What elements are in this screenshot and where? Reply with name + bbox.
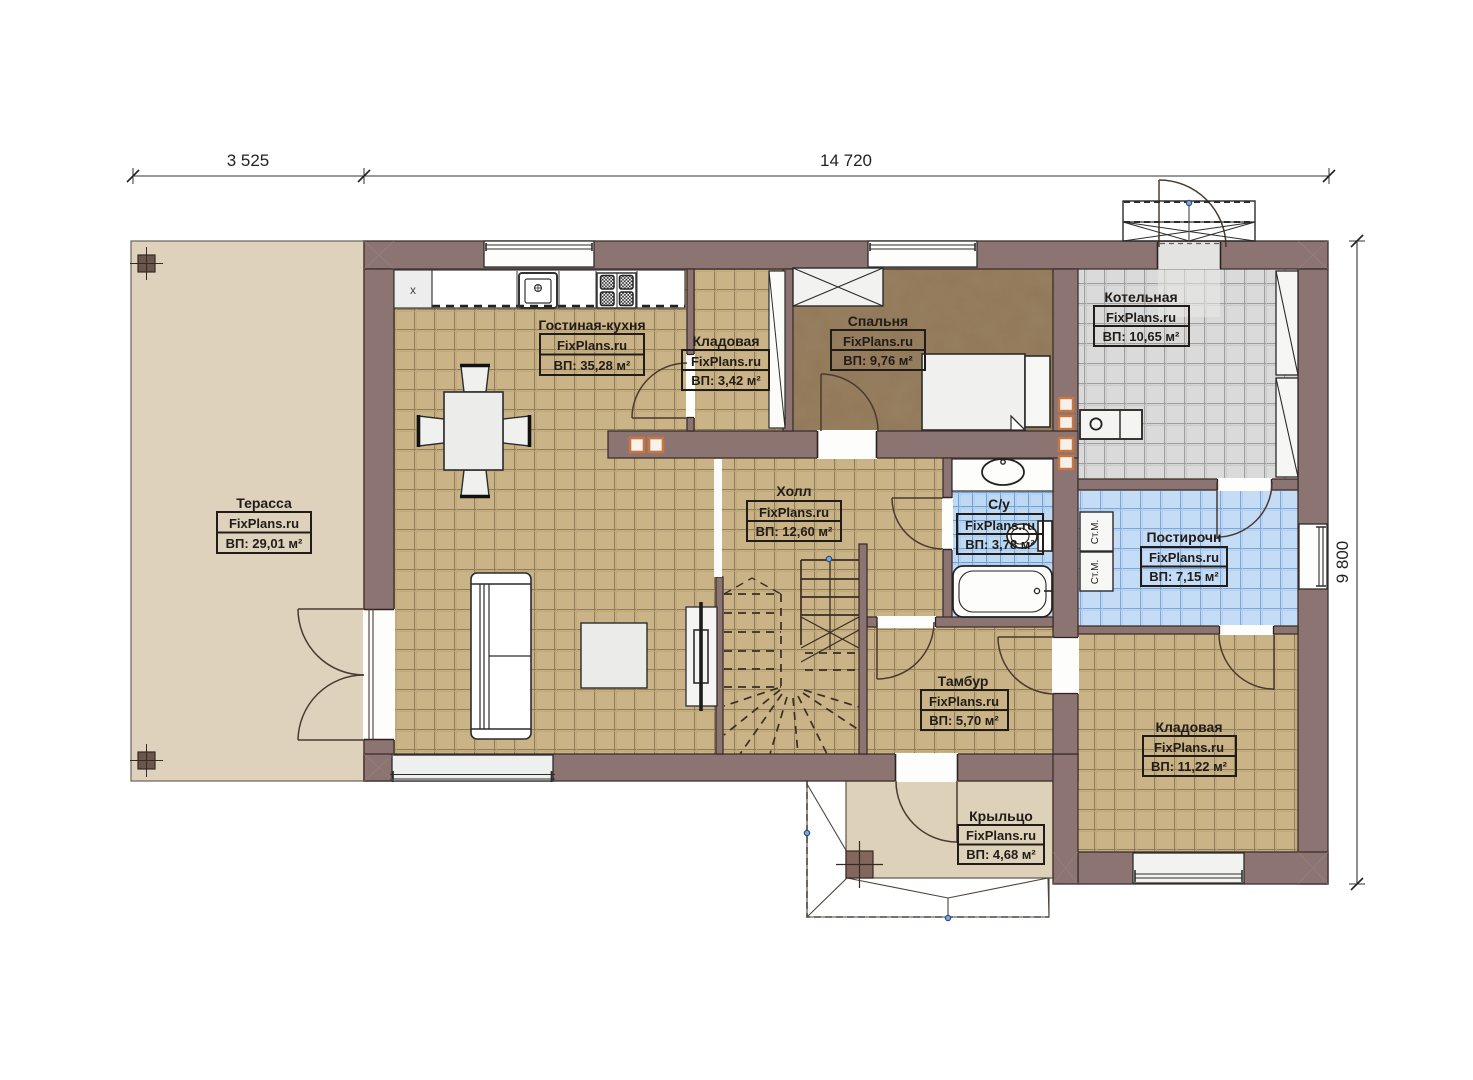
svg-text:3 525: 3 525 (227, 151, 270, 170)
svg-text:FixPlans.ru: FixPlans.ru (691, 354, 761, 369)
svg-text:Котельная: Котельная (1104, 289, 1177, 305)
svg-text:FixPlans.ru: FixPlans.ru (759, 505, 829, 520)
svg-text:ВП: 3,78 м²: ВП: 3,78 м² (965, 537, 1035, 552)
svg-text:9 800: 9 800 (1333, 541, 1352, 584)
svg-text:FixPlans.ru: FixPlans.ru (965, 518, 1035, 533)
svg-text:С/у: С/у (988, 496, 1010, 512)
svg-text:FixPlans.ru: FixPlans.ru (929, 694, 999, 709)
svg-text:FixPlans.ru: FixPlans.ru (1154, 740, 1224, 755)
svg-text:Кладовая: Кладовая (1155, 719, 1222, 735)
svg-text:Кладовая: Кладовая (692, 333, 759, 349)
svg-text:Гостиная-кухня: Гостиная-кухня (538, 317, 645, 333)
svg-text:14 720: 14 720 (820, 151, 872, 170)
svg-text:Ст.М.: Ст.М. (1090, 560, 1101, 585)
svg-text:ВП: 3,42 м²: ВП: 3,42 м² (691, 373, 761, 388)
svg-text:Ст.М.: Ст.М. (1090, 520, 1101, 545)
svg-text:x: x (410, 283, 416, 297)
svg-text:ВП: 4,68 м²: ВП: 4,68 м² (966, 847, 1036, 862)
svg-text:Терасса: Терасса (236, 495, 292, 511)
svg-text:ВП: 5,70 м²: ВП: 5,70 м² (929, 713, 999, 728)
svg-text:Постирочн: Постирочн (1146, 529, 1221, 545)
svg-text:FixPlans.ru: FixPlans.ru (229, 516, 299, 531)
svg-text:FixPlans.ru: FixPlans.ru (1149, 550, 1219, 565)
svg-text:FixPlans.ru: FixPlans.ru (843, 334, 913, 349)
svg-text:ВП: 9,76 м²: ВП: 9,76 м² (843, 353, 913, 368)
svg-text:Крыльцо: Крыльцо (969, 808, 1033, 824)
svg-text:FixPlans.ru: FixPlans.ru (557, 338, 627, 353)
svg-text:Тамбур: Тамбур (938, 673, 989, 689)
svg-text:ВП: 11,22 м²: ВП: 11,22 м² (1151, 759, 1228, 774)
svg-text:ВП: 12,60 м²: ВП: 12,60 м² (756, 524, 833, 539)
svg-text:Холл: Холл (776, 483, 811, 499)
svg-text:FixPlans.ru: FixPlans.ru (966, 828, 1036, 843)
svg-text:FixPlans.ru: FixPlans.ru (1106, 310, 1176, 325)
svg-text:Спальня: Спальня (848, 313, 908, 329)
svg-text:ВП: 7,15 м²: ВП: 7,15 м² (1149, 569, 1219, 584)
svg-text:ВП: 29,01 м²: ВП: 29,01 м² (226, 536, 303, 551)
svg-text:ВП: 10,65 м²: ВП: 10,65 м² (1103, 329, 1180, 344)
svg-text:ВП: 35,28 м²: ВП: 35,28 м² (554, 358, 631, 373)
